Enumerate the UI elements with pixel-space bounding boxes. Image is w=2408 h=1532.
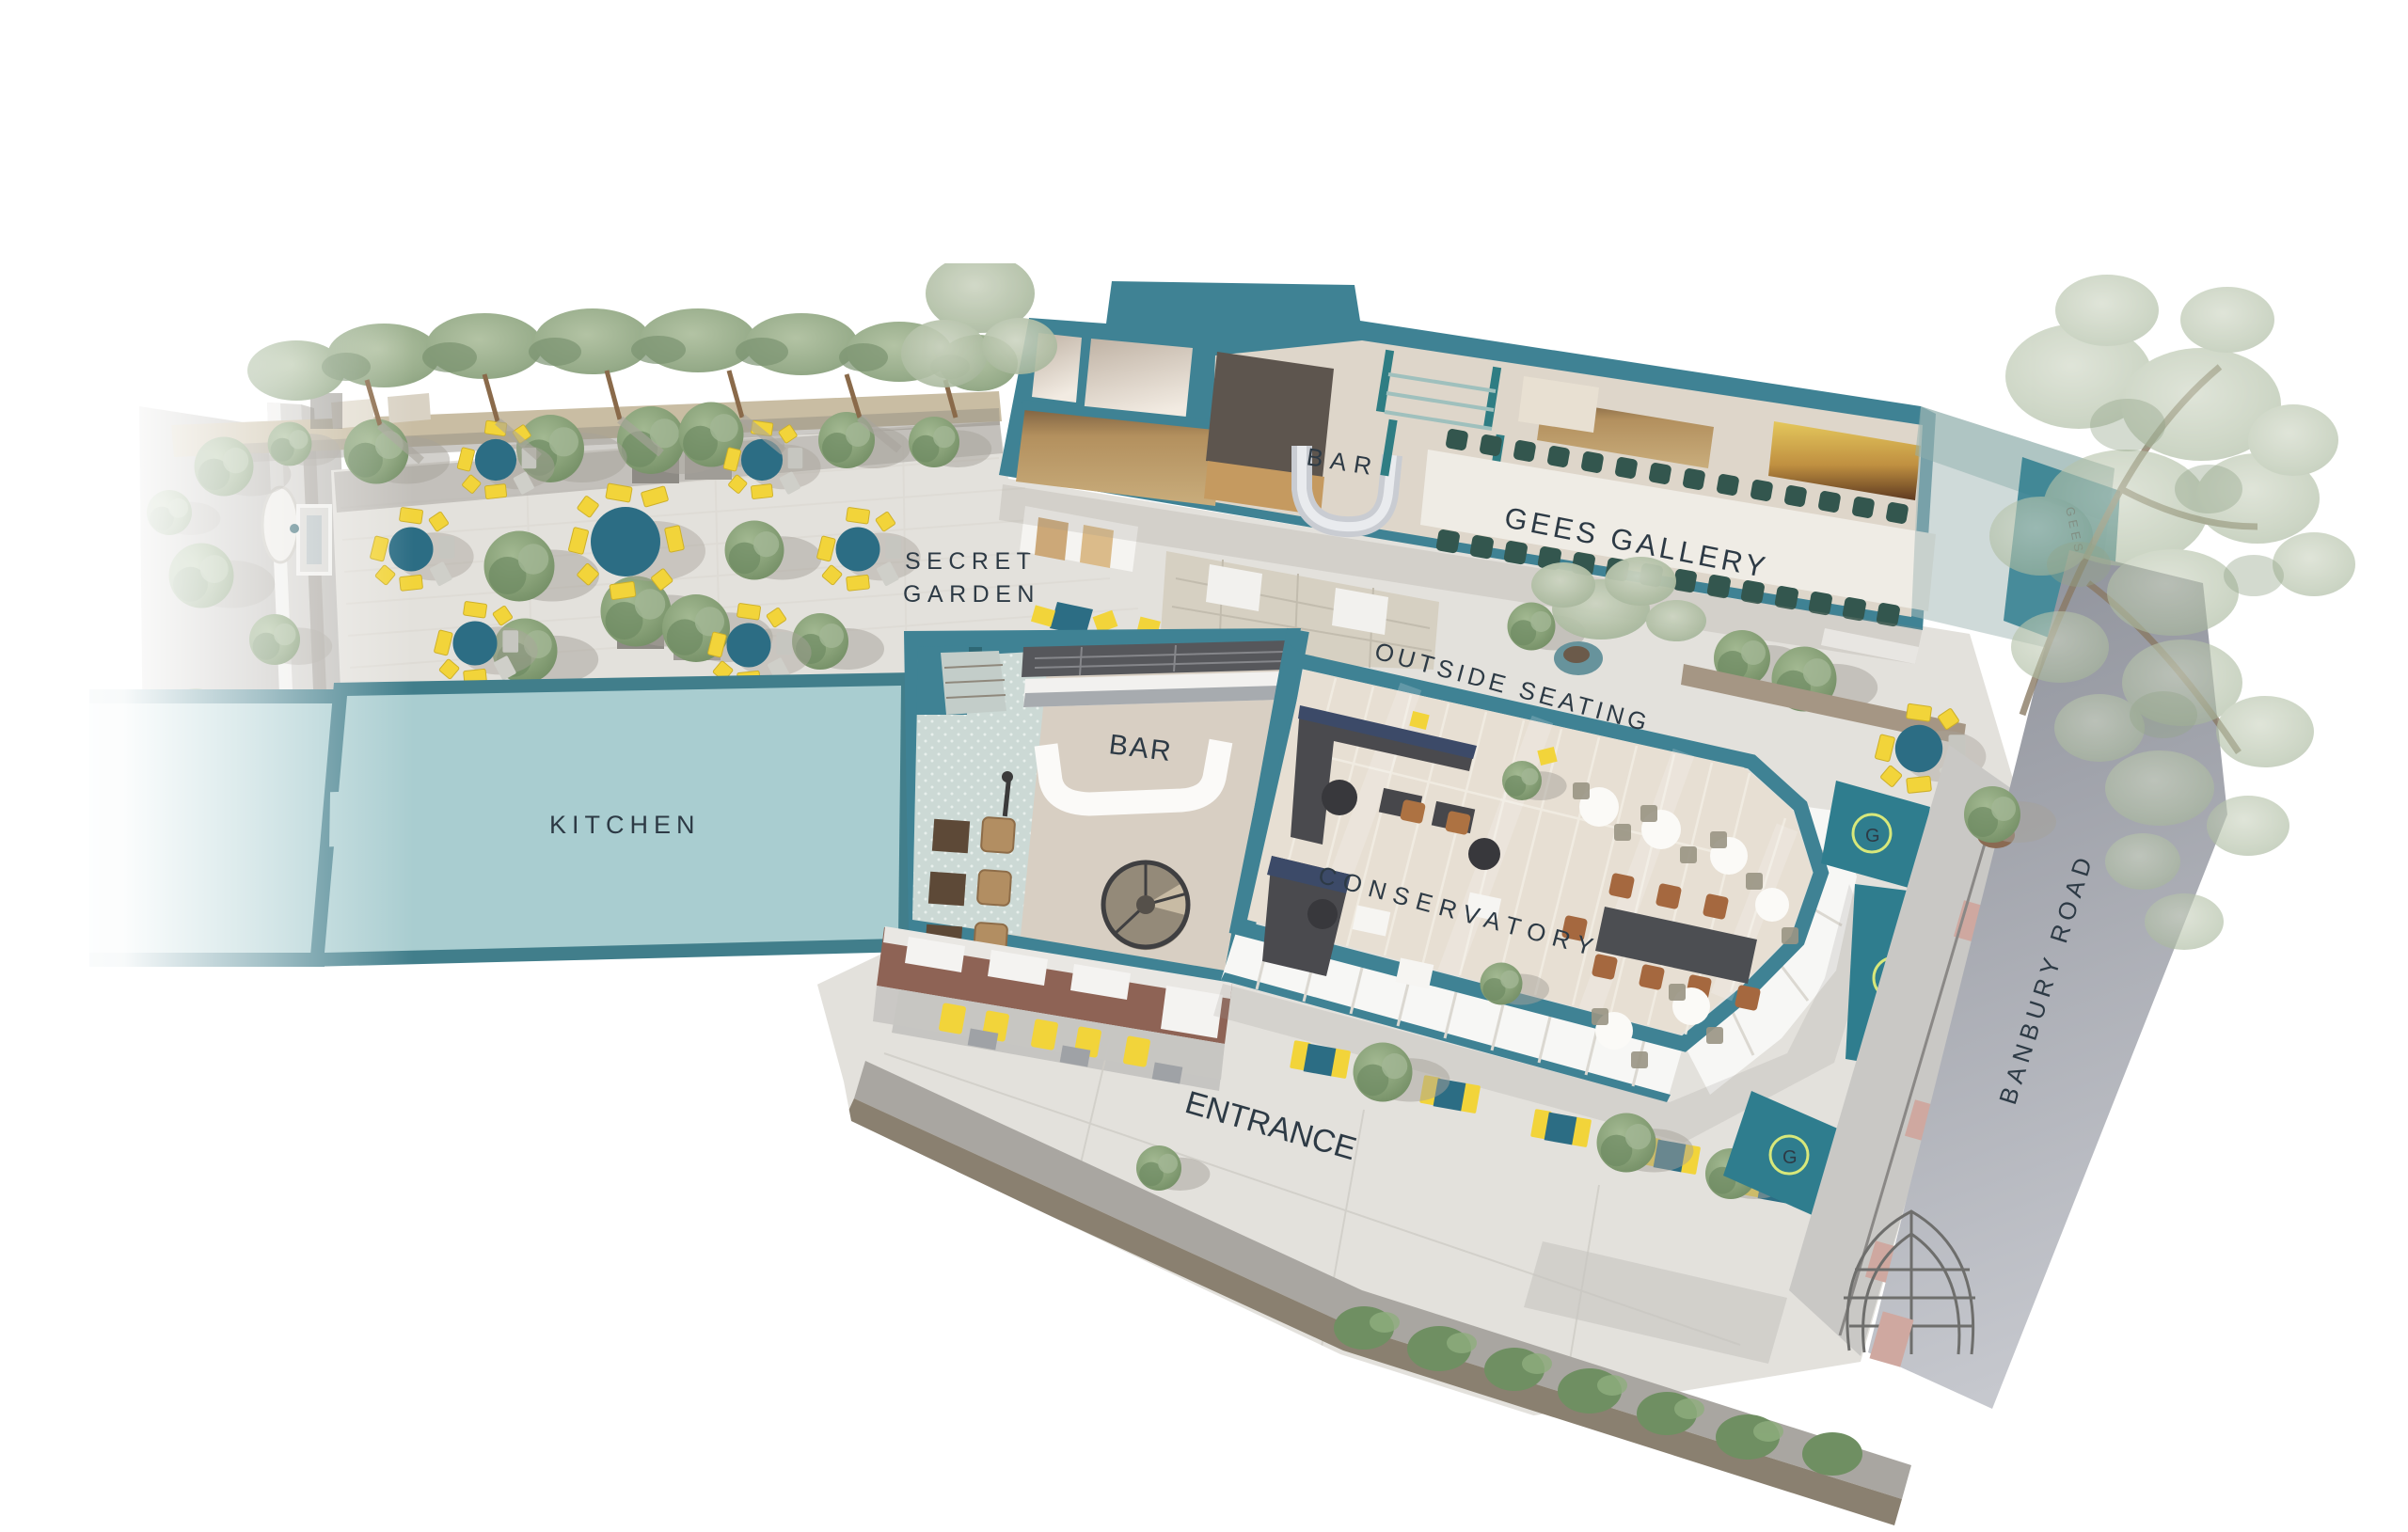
svg-text:KITCHEN: KITCHEN	[549, 811, 701, 839]
svg-text:SECRET: SECRET	[905, 548, 1037, 575]
svg-text:GARDEN: GARDEN	[903, 581, 1040, 608]
svg-text:G: G	[1782, 1147, 1798, 1168]
svg-text:G: G	[1865, 826, 1880, 846]
